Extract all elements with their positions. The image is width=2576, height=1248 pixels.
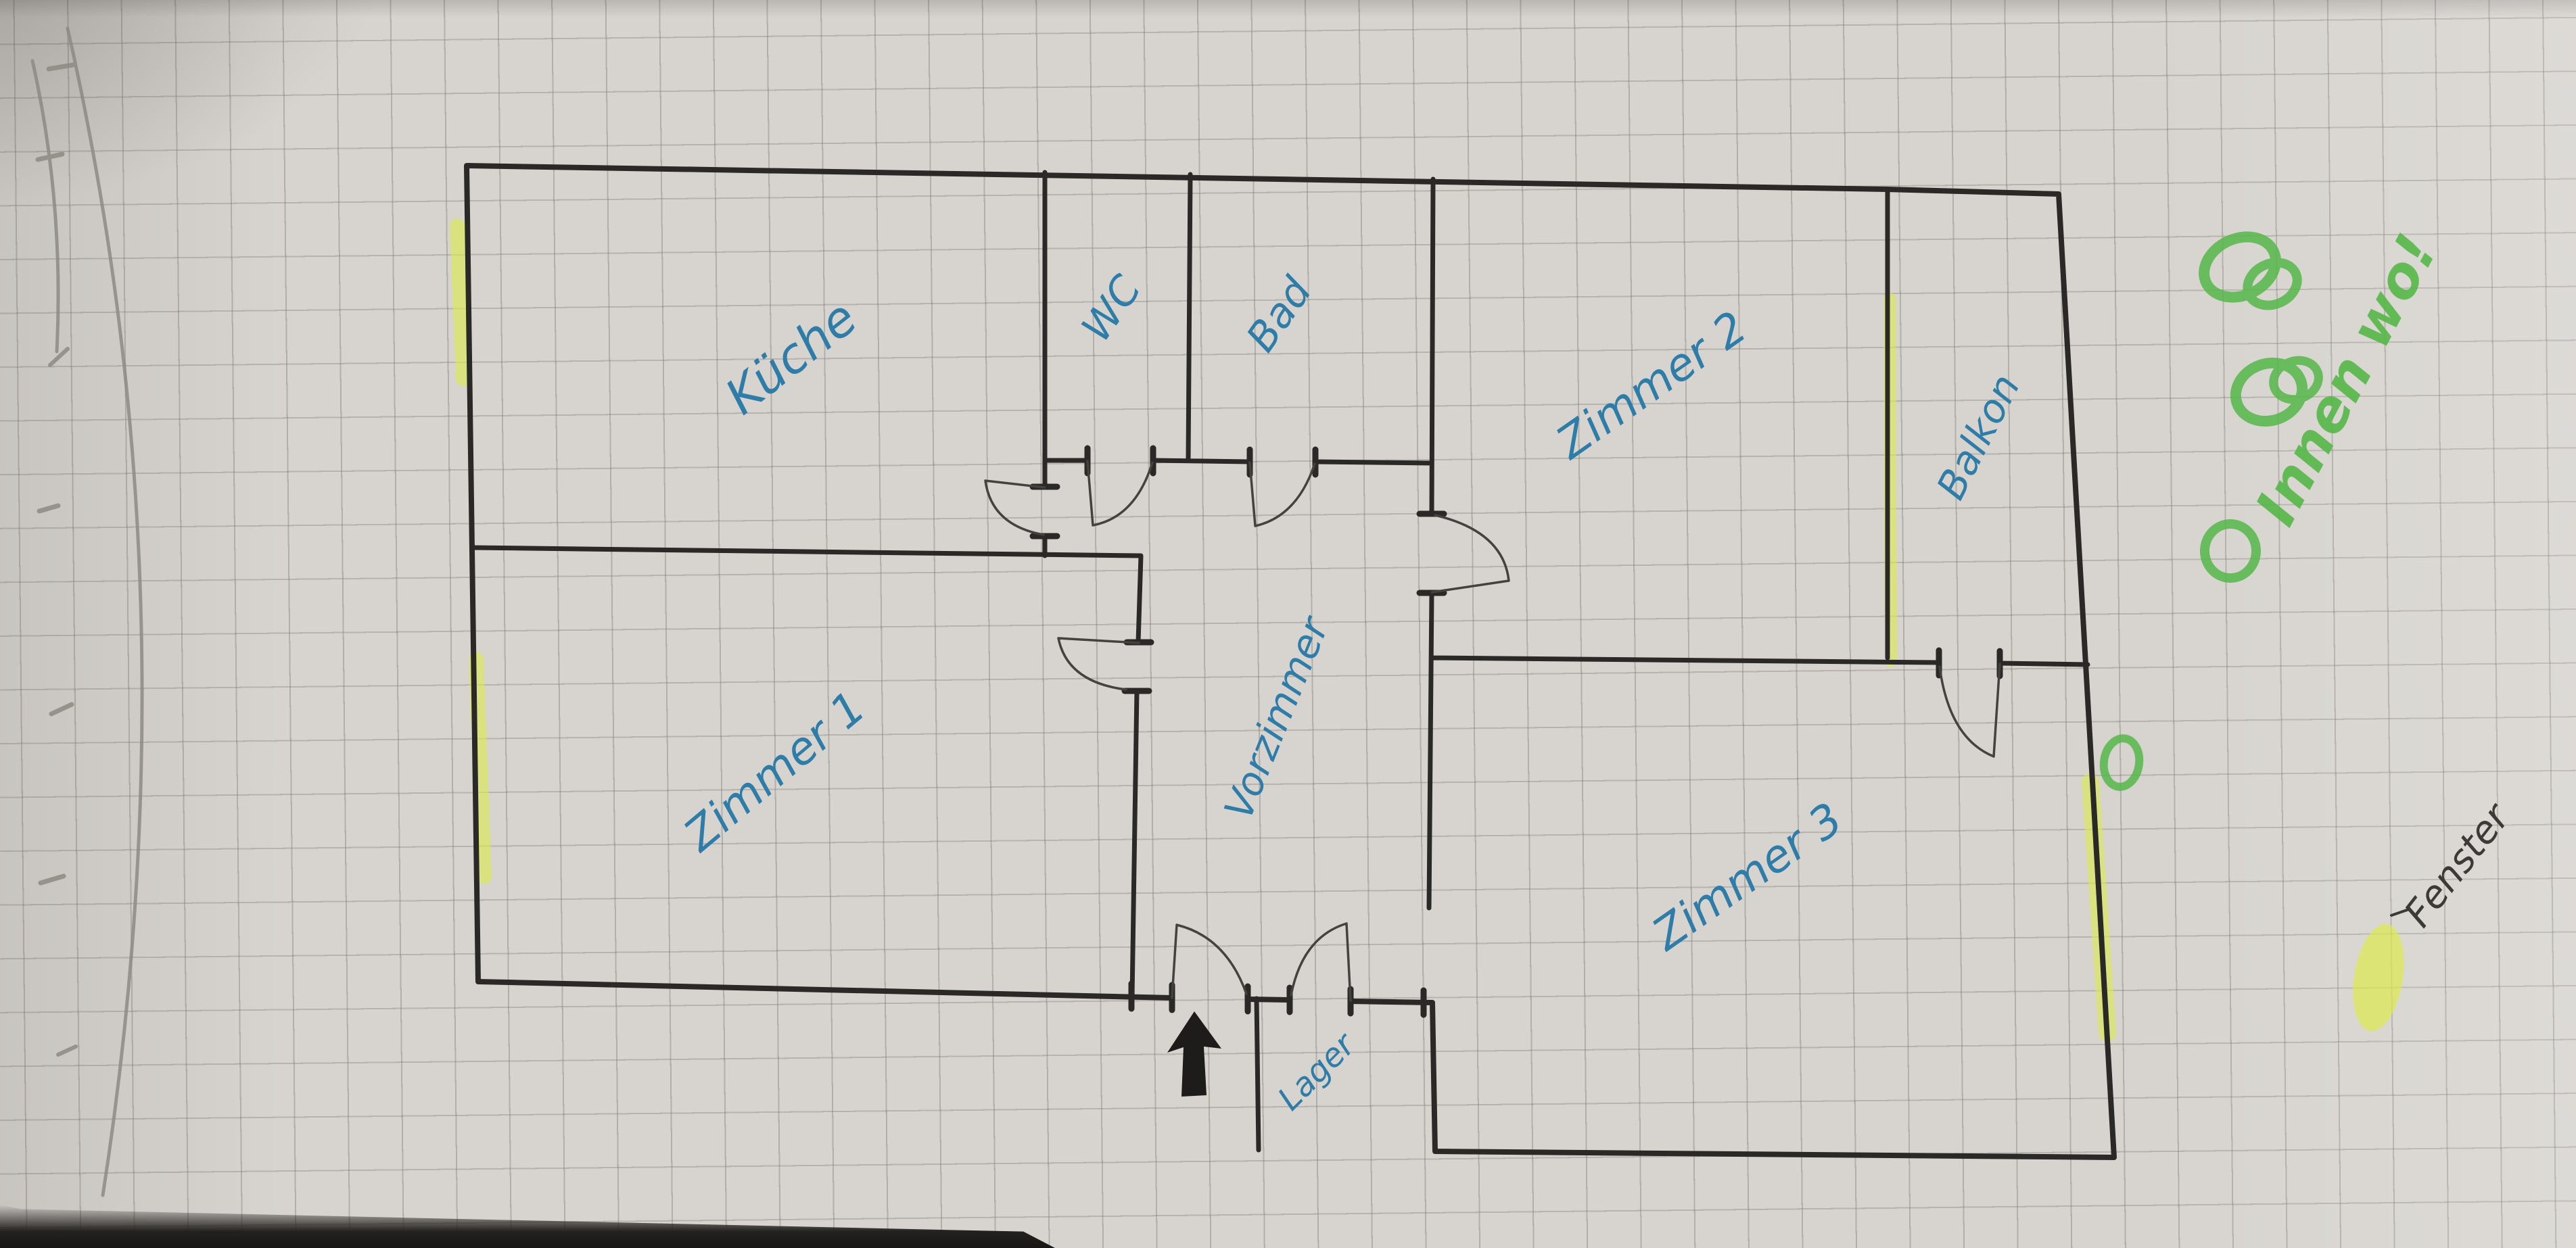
room-label-zimmer1: Zimmer 1: [674, 681, 875, 863]
pencil-curve: [68, 28, 142, 1195]
window-highlight-kueche: [457, 226, 463, 379]
floor-plan-drawing: Küche WC Bad Zimmer 2 Balkon Zimmer 1 Vo…: [0, 0, 2576, 1248]
door-swing-bad: [1250, 462, 1315, 526]
green-scribble-ring: [2205, 524, 2256, 578]
green-marker-notes: Innen wo!: [2101, 224, 2450, 790]
pencil-dash: [50, 349, 68, 365]
room-label-balkon: Balkon: [1927, 367, 2029, 507]
room-label-bad: Bad: [1238, 268, 1321, 360]
window-legend-text: Fenster: [2396, 794, 2520, 935]
room-label-zimmer2: Zimmer 2: [1546, 301, 1756, 469]
room-label-lager: Lager: [1271, 1025, 1364, 1118]
entrance-arrow-icon: [1167, 1011, 1221, 1097]
pencil-margin-marks: [32, 28, 142, 1195]
pencil-dash: [41, 876, 64, 883]
pencil-dash: [58, 1047, 76, 1055]
door-swing-zimmer2: [1432, 515, 1509, 592]
legend-highlight-sample: [2346, 920, 2411, 1034]
floor-plan-photo: Küche WC Bad Zimmer 2 Balkon Zimmer 1 Vo…: [0, 0, 2576, 1248]
door-swing-entrance: [1172, 925, 1246, 998]
pencil-dash: [38, 154, 62, 160]
room-label-vorzimmer: Vorzimmer: [1215, 609, 1338, 825]
room-label-zimmer3: Zimmer 3: [1642, 792, 1852, 961]
pencil-curve: [32, 61, 58, 352]
pencil-dash: [51, 704, 72, 714]
door-swing-zimmer1: [1058, 638, 1139, 690]
green-scribble-blob: [2241, 255, 2304, 313]
door-swing-wc: [1087, 461, 1152, 525]
pencil-dash: [49, 65, 73, 69]
room-label-wc: WC: [1073, 267, 1150, 350]
door-swing-balkon: [1940, 664, 2000, 757]
window-legend: Fenster: [2346, 794, 2520, 1034]
room-label-kueche: Küche: [715, 289, 867, 425]
pencil-dash: [39, 506, 58, 511]
green-scribble-ring: [2101, 736, 2142, 790]
door-swing-lager: [1291, 923, 1351, 1001]
door-jamb-ticks: [1033, 448, 2000, 1015]
